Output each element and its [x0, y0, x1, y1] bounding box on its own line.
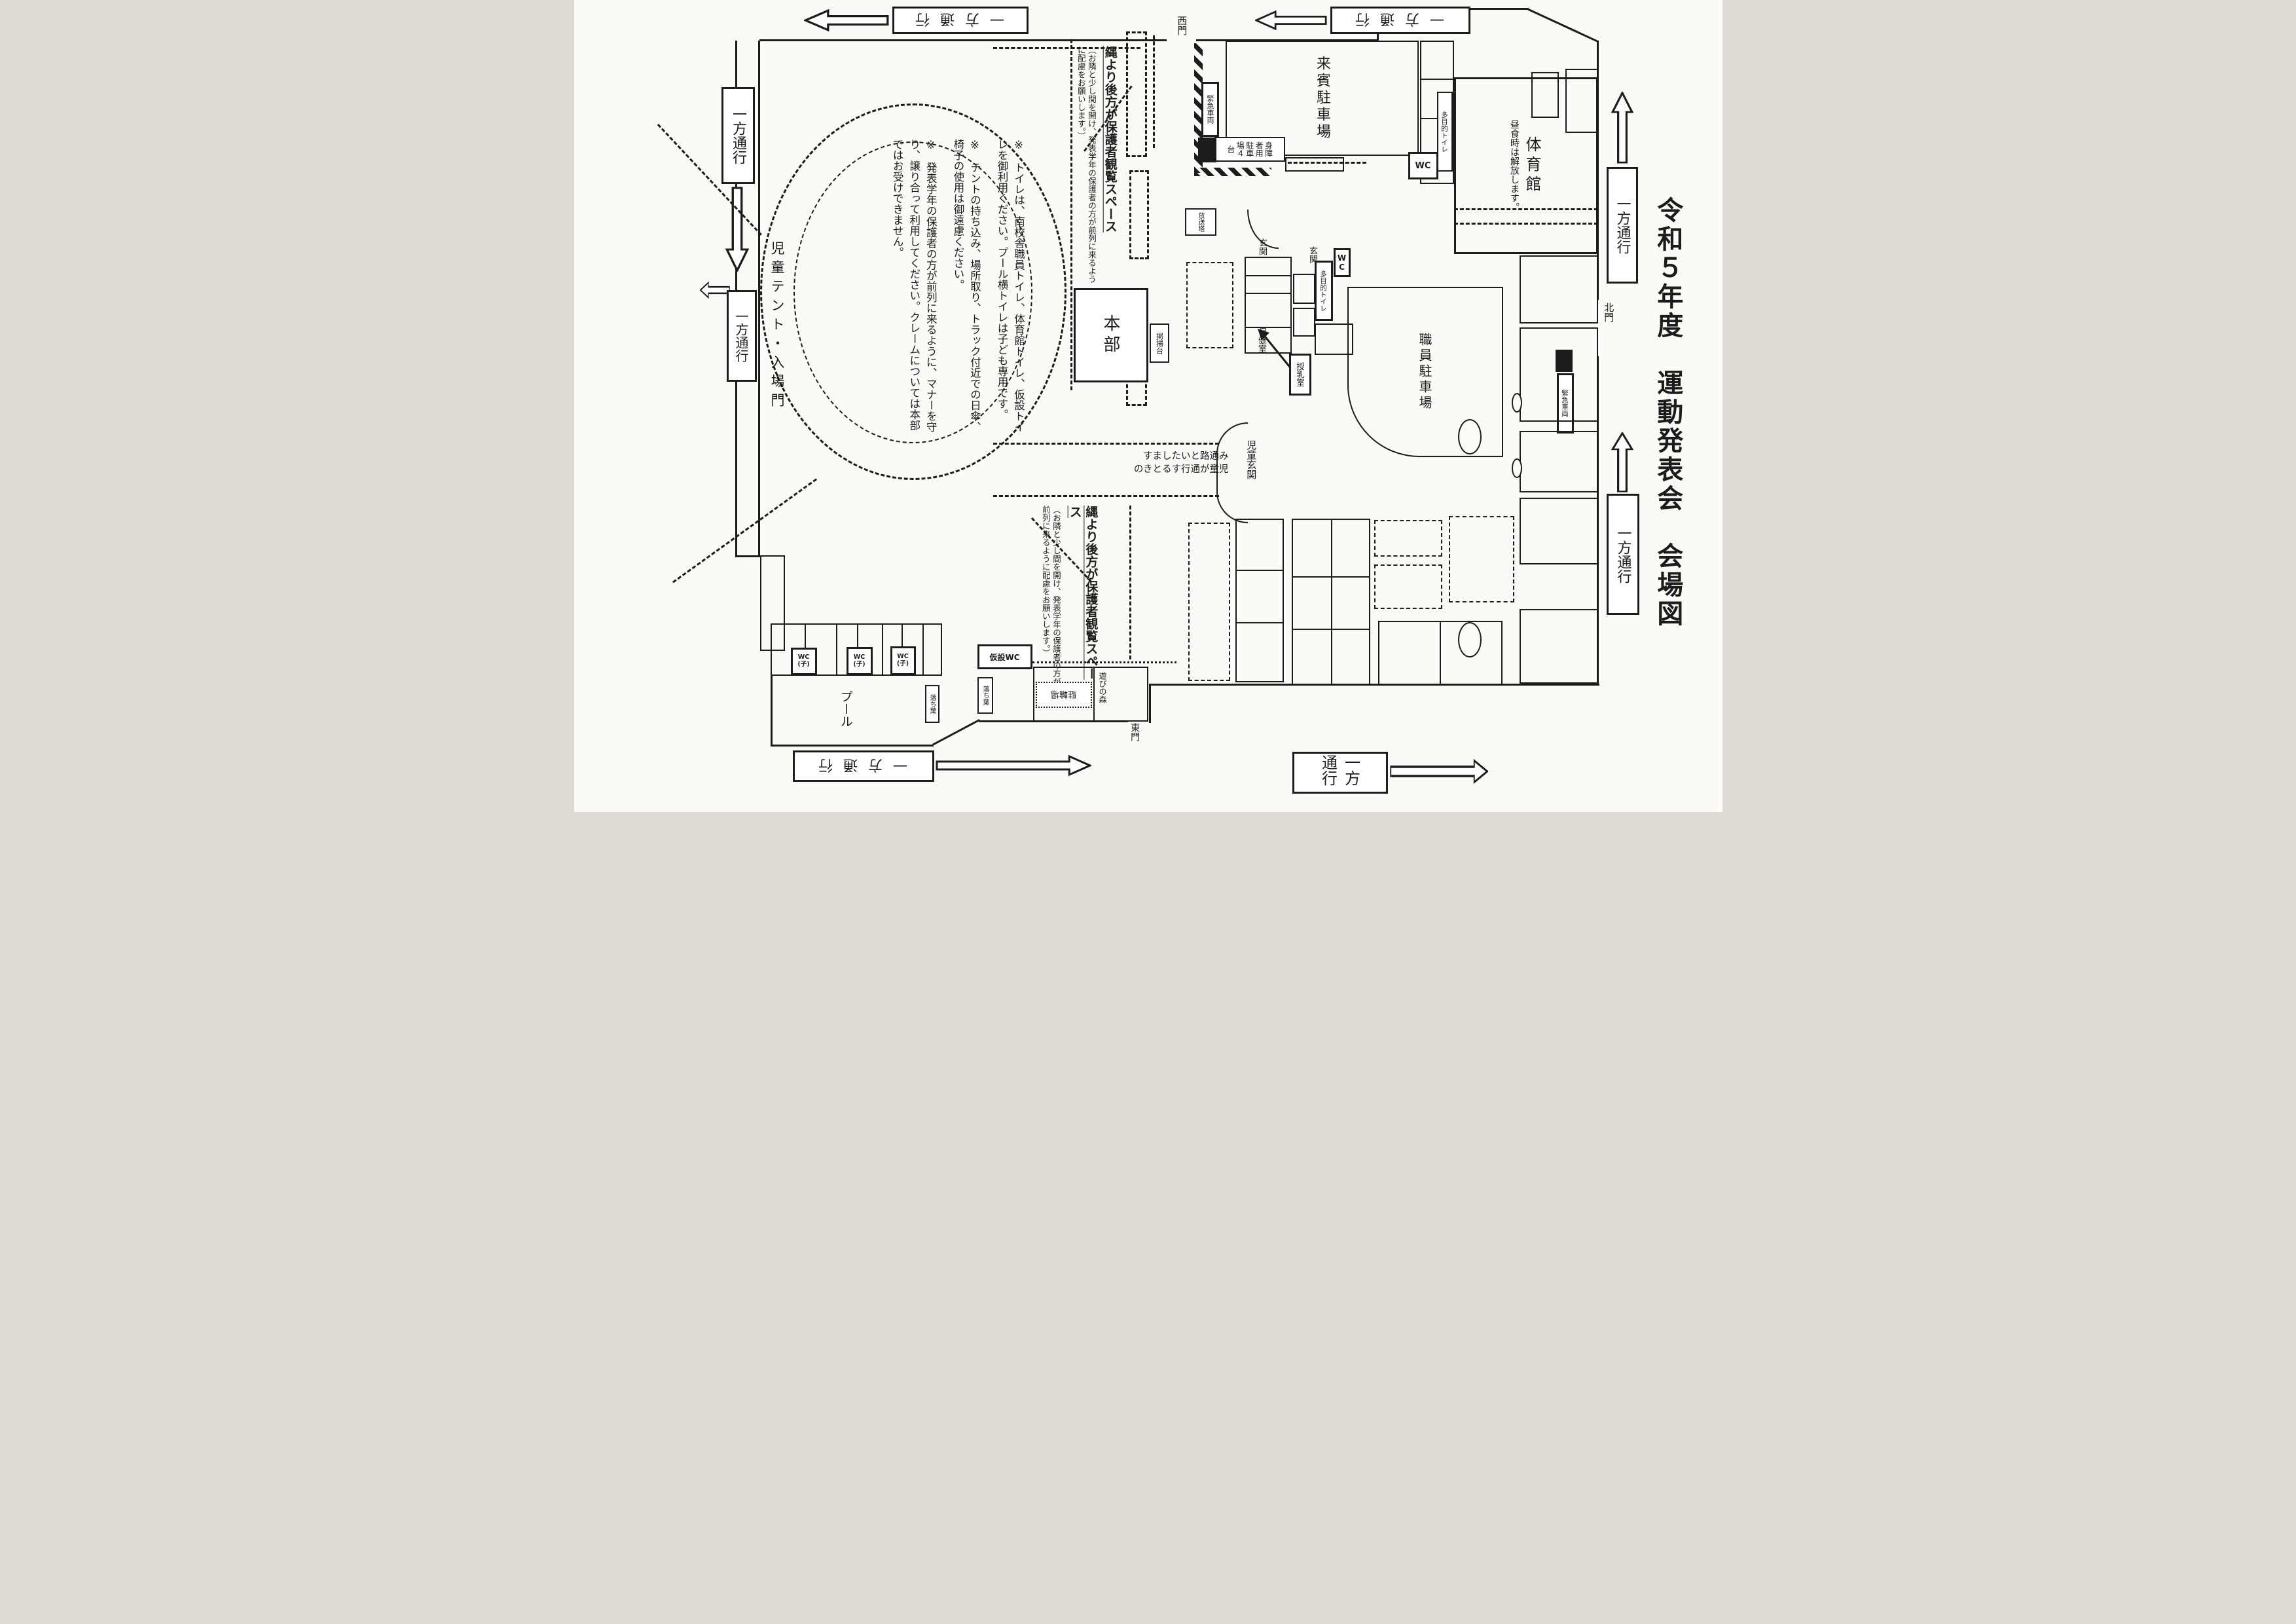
one-way-label: 一方通行	[905, 10, 1015, 31]
page-title: 令和５年度 運動発表会 会場図	[1653, 196, 1683, 655]
staff-parking-label: 職員駐車場	[1415, 333, 1434, 411]
building-divider	[1420, 79, 1454, 80]
building-block	[1520, 327, 1598, 422]
nursing-room-box: 授乳室	[1289, 354, 1311, 396]
one-way-arrow-left-icon	[1255, 10, 1327, 30]
building-block	[1293, 308, 1315, 337]
wc-label: WC	[1338, 253, 1347, 272]
emergency-vehicle-box-west: 緊急車両	[1201, 82, 1219, 137]
building-divider	[1235, 570, 1284, 571]
one-way-sign-left-upper: 一方通行	[721, 87, 755, 184]
bush-ellipse	[1512, 393, 1522, 413]
multi-toilet-box: 多目的トイレ	[1437, 92, 1453, 172]
temp-wc-label: 仮設WC	[989, 652, 1019, 663]
road-left-inner	[758, 41, 760, 557]
wc-child-label: (子)	[853, 661, 865, 669]
bicycle-parking-label: 駐輪場	[1051, 689, 1076, 701]
broadcast-tower-box: 放送塔	[1185, 208, 1216, 236]
driveway-arc	[1247, 210, 1279, 249]
wc-child-label: (子)	[797, 661, 809, 669]
gate-east-label: 東門	[1129, 723, 1140, 741]
gym-note: 昼食時は解放します。	[1508, 87, 1521, 244]
one-way-sign-right-lower: 一方通行	[1607, 494, 1639, 615]
wc-child-box: WC(子)	[847, 647, 873, 675]
note-item: ※ 発表学年の保護者の方が前列に来るように、マナーを守り、譲り合って利用してくだ…	[889, 139, 939, 437]
parking-stall-rect	[1449, 516, 1514, 602]
boundary-ne-diag	[1526, 8, 1598, 43]
multi-toilet-box: 多目的トイレ	[1315, 261, 1333, 321]
guest-parking-label: 来賓駐車場	[1311, 56, 1332, 141]
building-divider	[1235, 622, 1284, 623]
one-way-sign-top-left: 一方通行	[892, 7, 1029, 34]
building-block	[1520, 498, 1598, 564]
field-diagonal-sw	[672, 478, 817, 583]
tent-rect	[1126, 31, 1147, 157]
building-block	[1565, 69, 1598, 133]
fallen-leaves-box: 落ち葉	[925, 685, 939, 723]
emergency-vehicle-label: 緊急車両	[1205, 95, 1215, 124]
one-way-label: 一方通行	[732, 310, 751, 362]
gate-west-label: 西門	[1176, 16, 1188, 35]
parking-stall-rect	[1188, 523, 1230, 681]
building-divider	[1440, 621, 1441, 685]
wc-child-label: WC	[854, 654, 865, 661]
tent-rect	[1129, 170, 1149, 259]
viewing-space-title: 縄より後方が保護者観覧スペース	[1102, 46, 1118, 289]
building-block	[1520, 255, 1598, 323]
one-way-sign-bottom-left: 一方通行	[793, 750, 934, 782]
one-way-label: 一方通行	[808, 756, 918, 777]
road-left-bottom	[735, 555, 760, 557]
field-notes: ※ トイレは、南校舎職員トイレ、体育館トイレ、仮設トイレを御利用ください。プール…	[815, 139, 1027, 437]
viewing-top-dash-left	[1070, 39, 1072, 390]
flag-stand-box: 掲揚台	[1150, 323, 1169, 363]
building-divider	[1093, 667, 1095, 722]
pool-label: プール	[839, 690, 852, 728]
gym-south-dash-1	[1454, 208, 1598, 210]
viewing-top-dash-right	[1153, 35, 1155, 148]
multi-toilet-label: 多目的トイレ	[1440, 111, 1449, 153]
disabled-parking-box: 身障者用駐車場４台	[1214, 137, 1285, 162]
temp-wc-box: 仮設WC	[977, 644, 1032, 669]
note-item: ※ トイレは、南校舎職員トイレ、体育館トイレ、仮設トイレを御利用ください。プール…	[993, 139, 1027, 437]
bicycle-parking-box: 駐輪場	[1036, 682, 1092, 708]
hq-label: 本部	[1099, 314, 1123, 356]
one-way-label: 一方通行	[1613, 526, 1633, 583]
disabled-parking-label: 身障者用駐車場４台	[1226, 138, 1273, 160]
wc-child-box: WC(子)	[890, 646, 916, 675]
pool-bottom-line	[771, 745, 934, 747]
one-way-arrow-right-icon	[1390, 758, 1488, 784]
multi-toilet-label: 多目的トイレ	[1319, 270, 1328, 312]
one-way-arrow-right-icon	[936, 754, 1091, 777]
building-block	[1520, 431, 1598, 492]
wc-box: WC	[1334, 248, 1351, 277]
broadcast-tower-label: 放送塔	[1195, 212, 1205, 232]
corridor-dash-bottom	[993, 495, 1219, 497]
fallen-leaves-label: 落ち葉	[980, 686, 990, 705]
one-way-sign-right-upper: 一方通行	[1607, 167, 1638, 284]
boundary-top-left	[759, 39, 1167, 41]
building-divider	[1245, 293, 1292, 294]
boundary-top-dashed	[993, 47, 1140, 49]
boundary-south-right	[1149, 684, 1599, 686]
one-way-arrow-up-icon	[1611, 92, 1633, 164]
gate-north-label: 北門	[1603, 303, 1614, 322]
hq-box: 本部	[1074, 288, 1148, 382]
corridor-note-line: のきとるす行通が童児	[1131, 464, 1229, 477]
viewing-space-note: （お隣と少し間を開け、発表学年の保護者の方が前列に来るように配慮をお願いします。…	[1076, 46, 1097, 289]
play-forest-label: 遊びの森	[1098, 672, 1106, 703]
one-way-sign-left-lower: 一方通行	[727, 290, 757, 382]
venue-map: 令和５年度 運動発表会 会場図 一方通行 一方通行 一方通行 一方通行 一方通行	[574, 0, 1722, 812]
flag-stand-label: 掲揚台	[1154, 333, 1165, 354]
emergency-fill-west	[1198, 138, 1216, 162]
pool-diag-line	[932, 719, 980, 746]
one-way-arrow-up-icon	[1611, 432, 1633, 492]
building-divider	[1331, 519, 1332, 685]
nursing-room-label: 授乳室	[1294, 362, 1306, 387]
building-block	[1520, 609, 1598, 684]
parking-stall-rect	[1374, 564, 1442, 609]
corridor-dash-top	[993, 443, 1219, 445]
wc-child-box: WC(子)	[791, 648, 817, 675]
bush-ellipse	[1458, 622, 1482, 657]
fallen-leaves-box: 落ち葉	[977, 677, 993, 714]
one-way-sign-top-right: 一方通行	[1330, 7, 1470, 34]
building-block	[1235, 519, 1284, 682]
building-divider	[882, 623, 883, 676]
one-way-sign-bottom-right: 一方通行	[1292, 752, 1388, 794]
hatched-road-horizontal	[1194, 168, 1271, 176]
wc-child-label: (子)	[897, 661, 909, 668]
building-divider	[836, 623, 837, 676]
viewing-space-top: 縄より後方が保護者観覧スペース （お隣と少し間を開け、発表学年の保護者の方が前列…	[1076, 46, 1118, 289]
boundary-south-step	[1149, 684, 1151, 723]
one-way-label: 一方通行	[1612, 196, 1633, 254]
corridor-note-line: すましたいと路通み	[1131, 451, 1229, 464]
children-entrance-label: 児童玄関	[1246, 440, 1257, 479]
dashed-corridor-rect	[1186, 262, 1233, 348]
corridor-note: すましたいと路通み のきとるす行通が童児	[1131, 451, 1229, 491]
note-item: ※ テントの持ち込み、場所取り、トラック付近での日傘、椅子の使用は御遠慮ください…	[949, 139, 983, 437]
parking-strip	[1285, 157, 1344, 172]
viewing-bottom-dotted	[1032, 661, 1176, 663]
bush-ellipse	[1512, 458, 1522, 478]
building-divider	[922, 623, 924, 676]
children-entrance-arc	[1216, 422, 1248, 523]
one-way-label: 一方通行	[1317, 754, 1363, 791]
fallen-leaves-label: 落ち葉	[927, 694, 937, 714]
children-tent-gate-label: 児童テント・入場門	[769, 241, 785, 412]
one-way-label: 一方通行	[727, 107, 748, 164]
one-way-arrow-left-icon	[804, 9, 889, 31]
parking-stall-rect	[1374, 520, 1442, 557]
one-way-arrow-left-icon	[700, 282, 730, 299]
building-divider	[1245, 275, 1292, 276]
pool-left-line	[771, 674, 773, 747]
building-block	[1531, 72, 1559, 118]
gym-south-dash-2	[1454, 223, 1598, 225]
viewing-bottom-dash-right	[1129, 506, 1131, 659]
wc-label: WC	[1415, 161, 1431, 171]
building-block	[1293, 274, 1315, 304]
wc-box: WC	[1408, 152, 1438, 179]
bush-ellipse	[1458, 419, 1482, 454]
one-way-label: 一方通行	[1345, 10, 1455, 31]
nursing-arrow-icon	[1255, 326, 1294, 372]
